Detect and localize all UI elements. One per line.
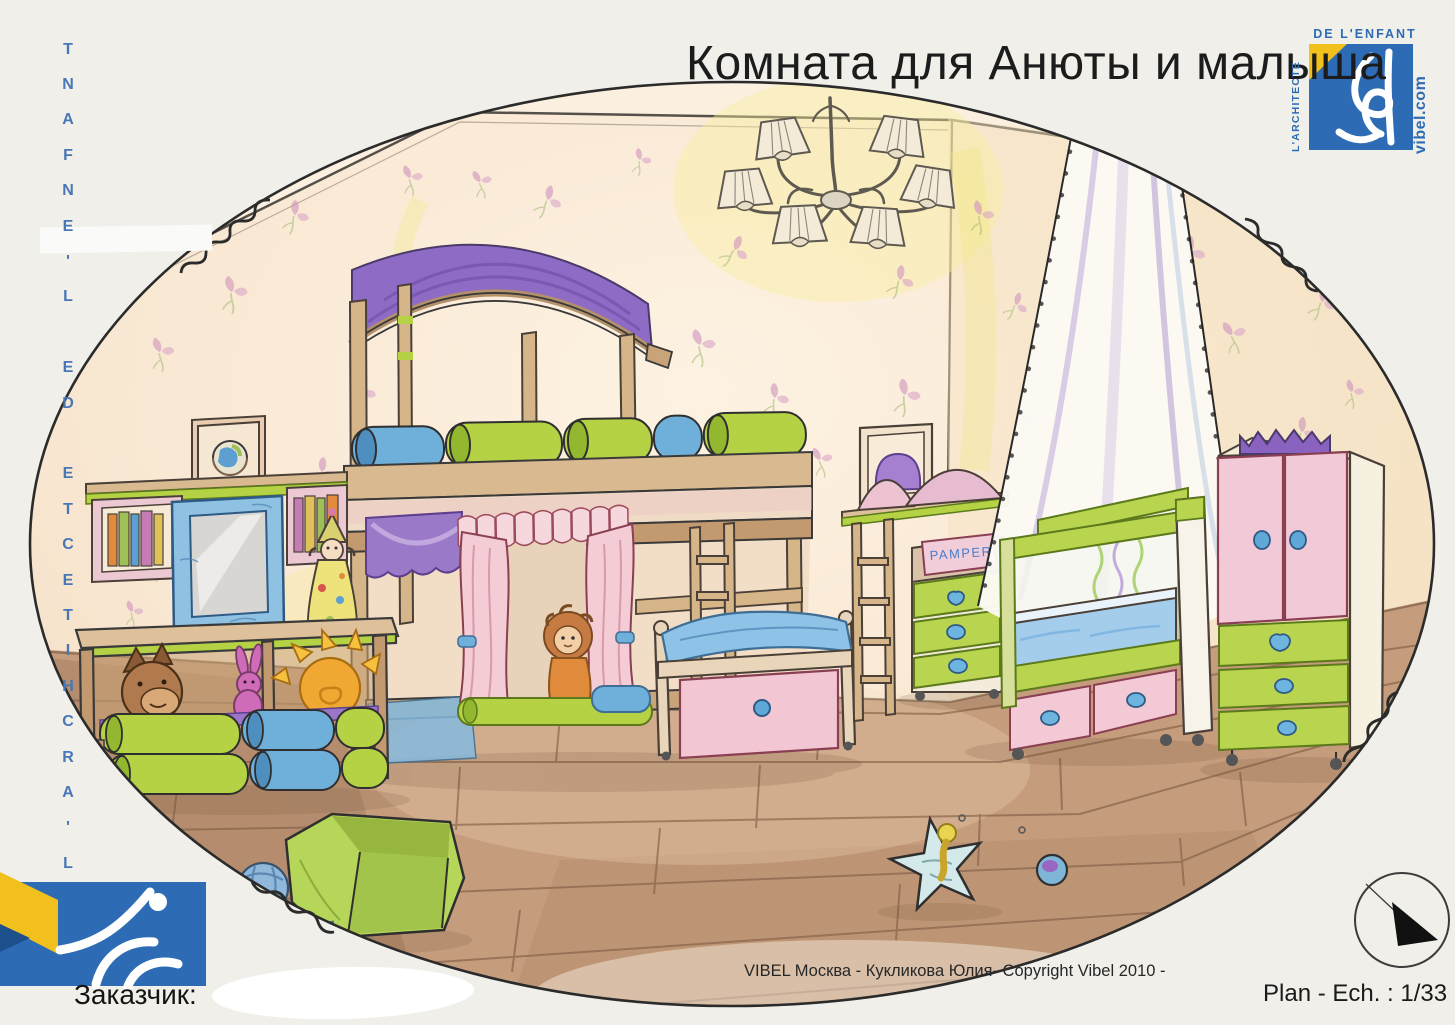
vibel-logo-bottom-left bbox=[0, 866, 212, 992]
plan-scale-label: Plan - Ech. : 1/33 bbox=[1263, 980, 1447, 1008]
mirror bbox=[172, 496, 284, 634]
credit-line: VIBEL Москва - Кукликова Юлия- Copyright… bbox=[744, 962, 1166, 981]
page-title: Комната для Анюты и малыша bbox=[686, 36, 1386, 91]
room-illustration: PAMPERS bbox=[0, 0, 1455, 1025]
north-arrow-icon bbox=[1350, 866, 1455, 971]
logo-top-text: DE L'ENFANT bbox=[1306, 27, 1424, 41]
logo-website-text: vibel.com bbox=[1412, 42, 1430, 154]
left-margin-vertical-text: TNAFNE'L ED ETCETIHCRA'L bbox=[54, 32, 82, 881]
scanned-design-board: PAMPERS bbox=[0, 0, 1455, 1025]
room-scene: PAMPERS bbox=[0, 0, 1455, 1025]
wardrobe bbox=[1218, 430, 1384, 770]
toy-console bbox=[76, 618, 398, 795]
pet-basket bbox=[286, 814, 464, 938]
bench-toy-chest bbox=[654, 611, 855, 761]
logo-side-text: L'ARCHITECTE bbox=[1290, 44, 1302, 152]
client-label: Заказчик: bbox=[74, 979, 197, 1011]
book-cubby bbox=[92, 496, 182, 582]
